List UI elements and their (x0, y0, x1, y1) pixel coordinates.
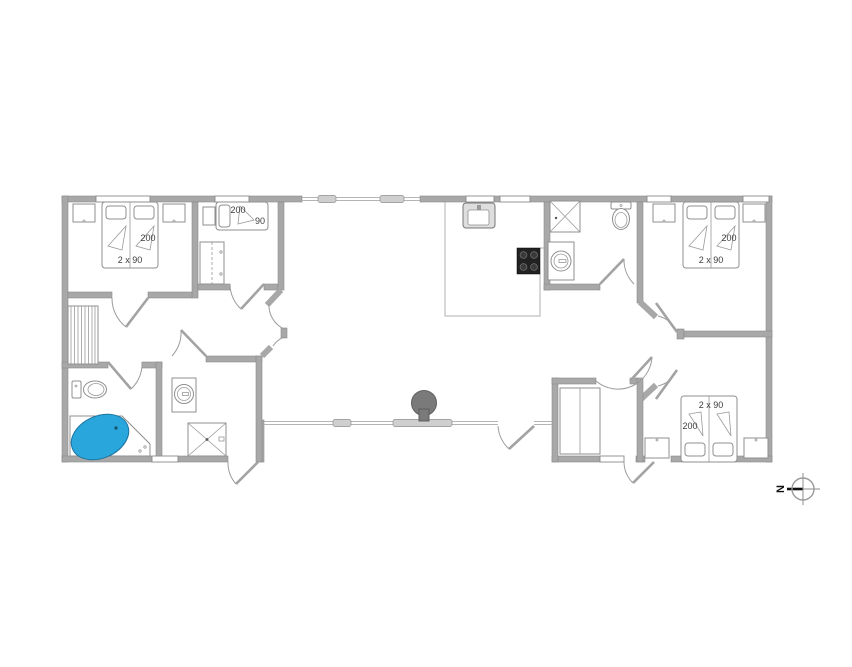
kitchen (445, 202, 544, 316)
bedroom-4: 2 x 90 200 (645, 396, 768, 462)
glass-facade-top (302, 196, 420, 203)
shower (188, 423, 226, 456)
wardrobe (200, 242, 224, 284)
washbasin (548, 242, 574, 280)
double-bed: 200 2 x 90 (102, 202, 158, 268)
bedroom-1: 200 2 x 90 (73, 202, 185, 268)
nightstand (163, 204, 185, 222)
cooktop (517, 248, 540, 274)
bed-length-label: 200 (721, 233, 736, 243)
bathroom-1 (64, 381, 150, 468)
bed-size-label: 2 x 90 (699, 255, 724, 265)
double-bed: 200 2 x 90 (683, 202, 739, 268)
nightstand (743, 204, 765, 222)
toilet (611, 202, 631, 230)
living-room (412, 391, 437, 422)
nightstand (73, 204, 95, 222)
floor-plan: 200 2 x 90 200 90 (0, 0, 852, 667)
wardrobe (560, 388, 600, 454)
double-bed: 2 x 90 200 (681, 396, 737, 462)
compass-icon: N (775, 473, 820, 505)
bed-width-label: 90 (255, 216, 265, 226)
north-label: N (775, 485, 787, 493)
glass-facade-south (264, 420, 552, 427)
shower-room (172, 378, 226, 456)
slatted-mat (68, 306, 98, 364)
nightstand (203, 207, 215, 225)
bedroom-3: 200 2 x 90 (653, 202, 765, 268)
bed-length-label: 200 (230, 205, 245, 215)
single-bed: 200 90 (216, 202, 268, 230)
shower (550, 201, 580, 232)
bed-size-label: 2 x 90 (118, 255, 143, 265)
bedroom-2: 200 90 (200, 202, 268, 284)
toilet (72, 381, 107, 398)
bed-size-label: 2 x 90 (699, 400, 724, 410)
wood-stove (412, 391, 437, 422)
bathroom-2 (548, 201, 631, 280)
floor-plan-canvas: 200 2 x 90 200 90 (0, 0, 852, 667)
bed-length-label: 200 (140, 233, 155, 243)
kitchen-sink (463, 203, 495, 228)
nightstand (653, 204, 675, 222)
washbasin (172, 378, 196, 412)
entrance-hall (68, 306, 98, 364)
storage-room (560, 388, 600, 454)
bed-length-label: 200 (682, 421, 697, 431)
